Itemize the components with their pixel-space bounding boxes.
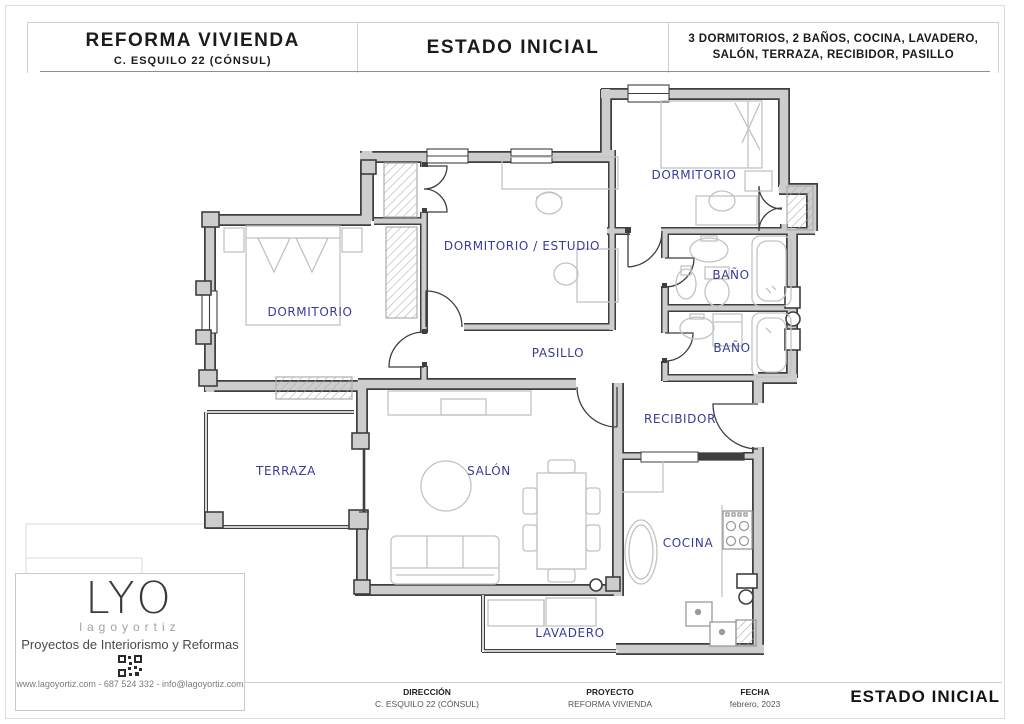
closet-estudio [384,163,417,217]
footer-field-fecha: FECHA febrero, 2023 [655,687,855,709]
room-label-dormitorio-norte: DORMITORIO [651,168,736,182]
furniture-salon [388,391,600,584]
footer-label: DIRECCIÓN [327,687,527,697]
furniture-layer [224,101,791,646]
brand-logo: LYO [16,576,244,622]
room-label-terraza: TERRAZA [255,464,316,478]
room-label-recibidor: RECIBIDOR [644,412,716,426]
plan-sheet: { "header": { "project_title": "REFORMA … [0,0,1024,724]
closet-dormitorio-norte [787,186,813,230]
wardrobe-dormitorio-principal [276,377,352,399]
room-label-lavadero: LAVADERO [535,626,604,640]
qr-code-icon [16,654,244,678]
room-label-bano-2: BAÑO [713,340,750,355]
footer-field-direccion: DIRECCIÓN C. ESQUILO 22 (CÓNSUL) [327,687,527,709]
room-labels-layer: DORMITORIO DORMITORIO / ESTUDIO DORMITOR… [255,168,751,640]
room-label-dormitorio-estudio: DORMITORIO / ESTUDIO [444,239,600,253]
room-label-bano-1: BAÑO [712,267,749,282]
brand-tagline: Proyectos de Interiorismo y Reformas [16,637,244,652]
furniture-estudio [502,157,618,302]
room-label-dormitorio-principal: DORMITORIO [267,305,352,319]
brand-contact: www.lagoyortiz.com - 687 524 332 - info@… [16,679,244,689]
room-label-salon: SALÓN [467,463,511,478]
furniture-cocina [621,461,756,646]
closet-dormitorio-principal [386,227,417,318]
footer-value: febrero, 2023 [655,699,855,709]
windows-layer [202,85,669,333]
footer-label: FECHA [655,687,855,697]
room-label-pasillo: PASILLO [532,346,584,360]
logo-card: LYO lagoyortiz Proyectos de Interiorismo… [15,573,245,711]
footer-sheet-title: ESTADO INICIAL [850,687,1000,707]
room-label-cocina: COCINA [663,536,714,550]
brand-sub: lagoyortiz [16,620,244,634]
furniture-dormitorio-norte [661,101,772,225]
furniture-lavadero [488,598,596,626]
footer-value: C. ESQUILO 22 (CÓNSUL) [327,699,527,709]
footer-rule [245,682,1002,683]
